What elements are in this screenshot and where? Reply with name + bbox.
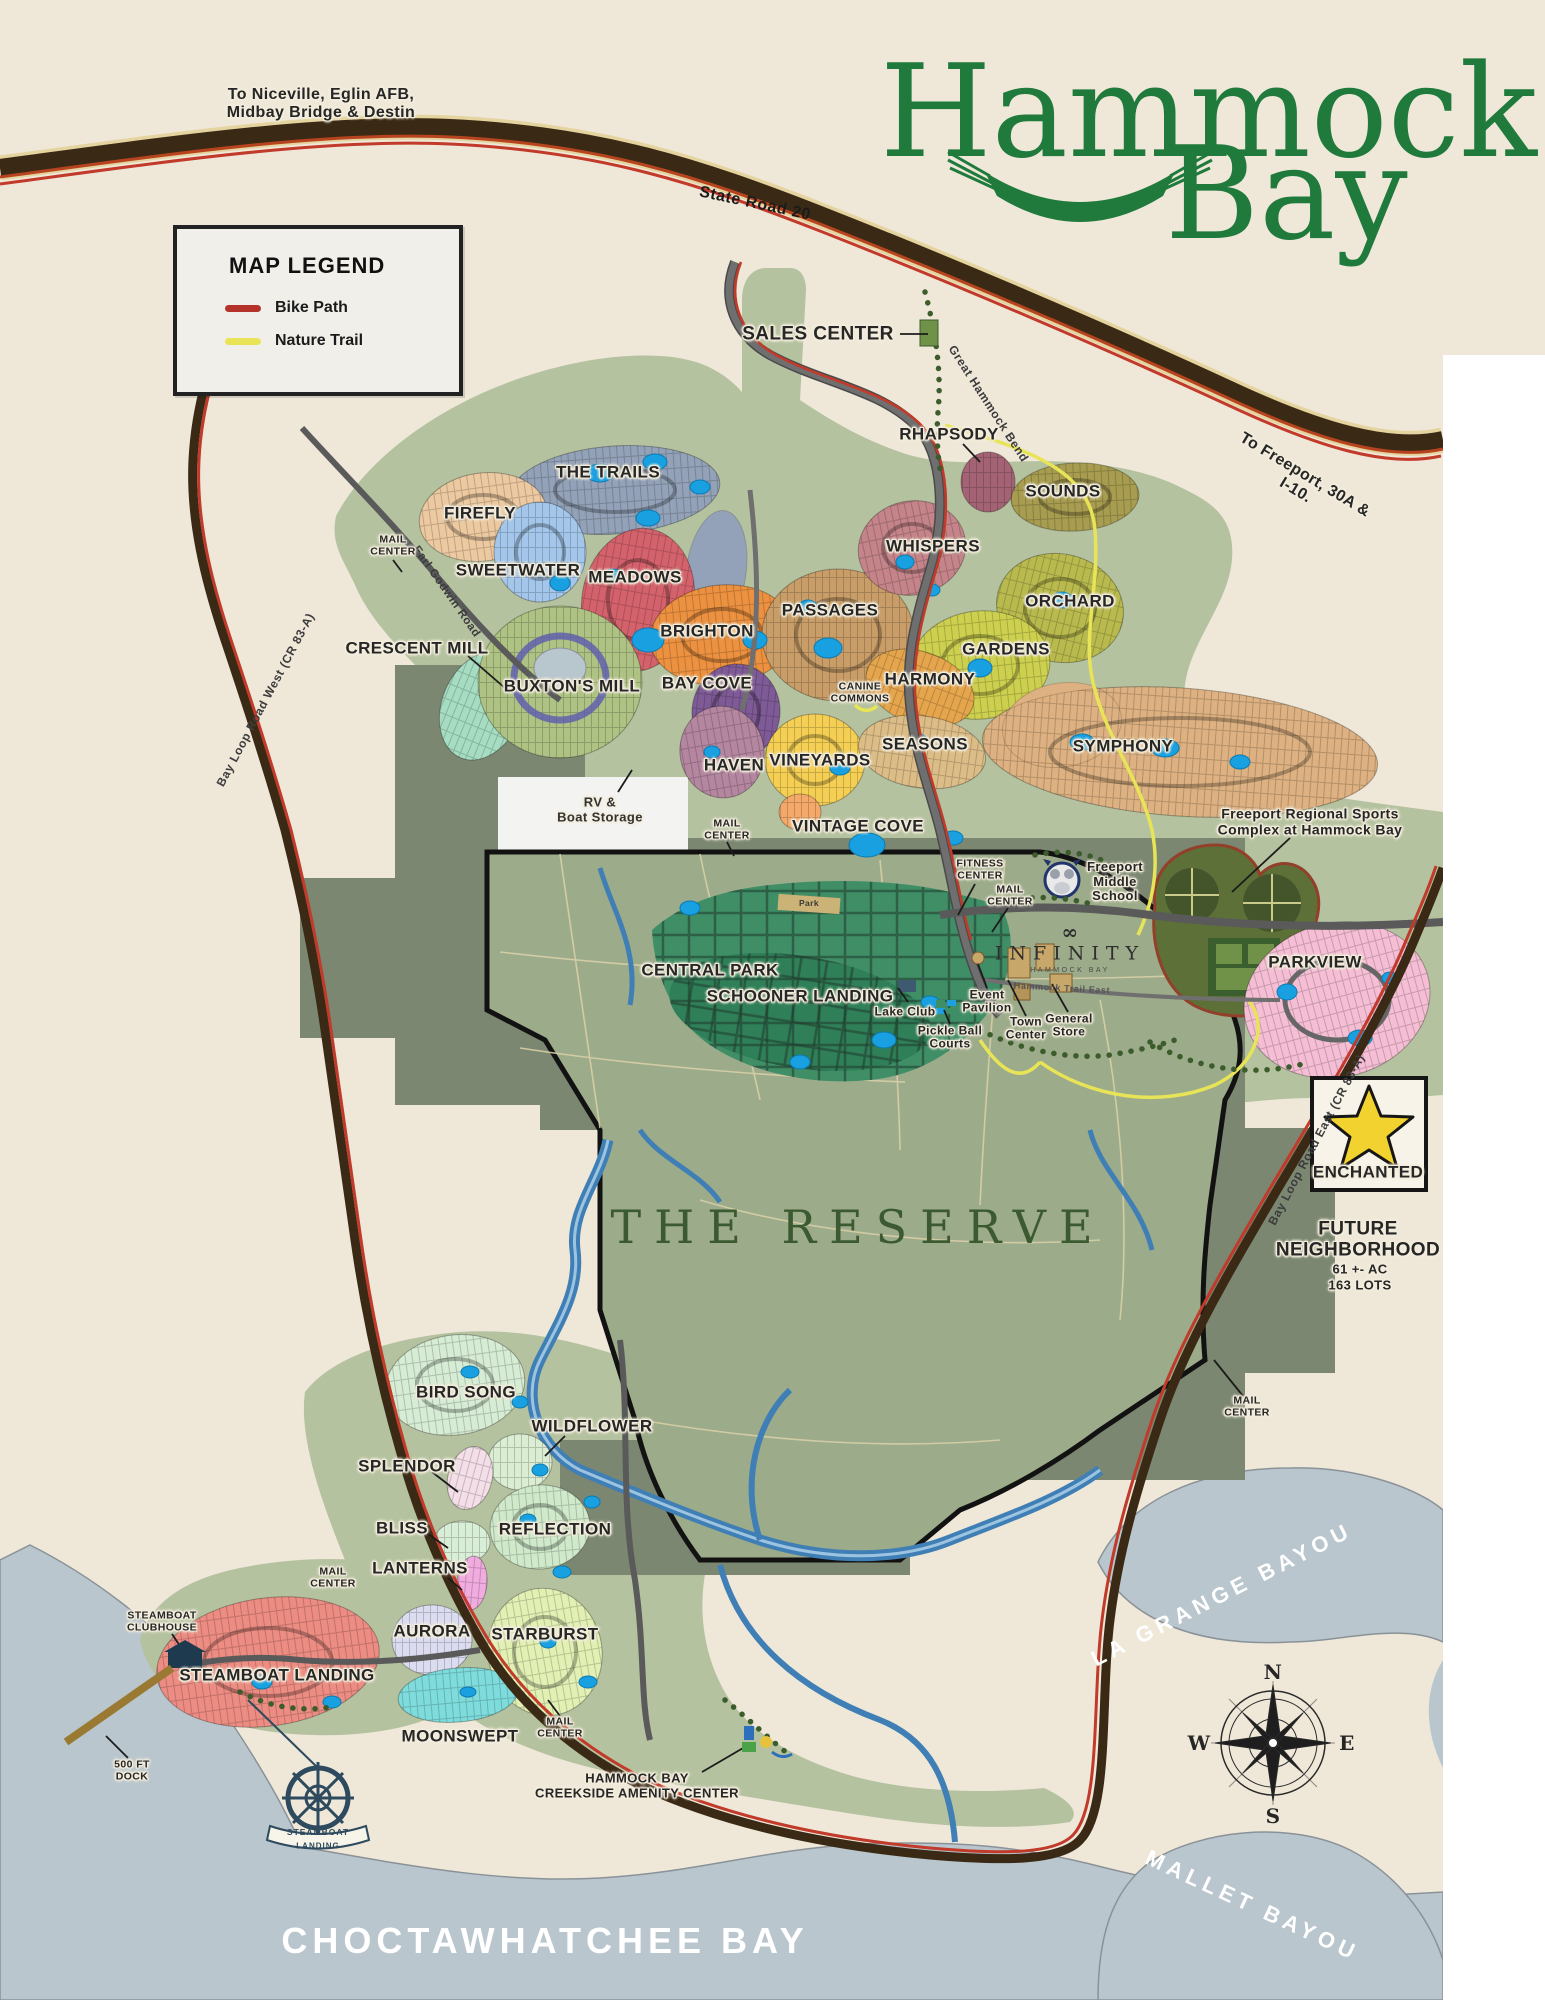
compass-north: N (1264, 1661, 1283, 1683)
bike-path-swatch (225, 305, 261, 312)
neighborhood-label-steamboat-landing: STEAMBOAT LANDING (179, 1665, 374, 1684)
neighborhood-label-sweetwater: SWEETWATER (456, 560, 581, 579)
future-acreage-label: 61 +- AC (1332, 1263, 1387, 1278)
neighborhood-label-wildflower: WILDFLOWER (531, 1416, 652, 1435)
fitness-center-label: FITNESS CENTER (956, 858, 1003, 882)
mail-center-label-moonswept: MAIL CENTER (537, 1716, 583, 1740)
neighborhood-label-aurora: AURORA (393, 1621, 470, 1640)
neighborhood-label-lanterns: LANTERNS (372, 1558, 468, 1577)
neighborhood-label-vintage-cove: VINTAGE COVE (792, 816, 924, 835)
middle-school-crest (1043, 859, 1081, 897)
nature-trail-label: Nature Trail (275, 332, 363, 350)
sales-center-label: SALES CENTER (742, 323, 894, 344)
neighborhood-label-gardens: GARDENS (962, 639, 1050, 658)
neighborhood-label-schooner-landing: SCHOONER LANDING (707, 986, 894, 1005)
steamboat-badge-bottom: LANDING (296, 1843, 339, 1852)
mail-center-label-east: MAIL CENTER (1224, 1395, 1270, 1419)
map-legend-title: MAP LEGEND (229, 253, 385, 279)
steamboat-clubhouse-label: STEAMBOAT CLUBHOUSE (127, 1610, 197, 1634)
neighborhood-label-bay-cove: BAY COVE (662, 673, 752, 692)
neighborhood-label-central-park: CENTRAL PARK (641, 960, 778, 979)
neighborhood-label-the-trails: THE TRAILS (556, 462, 660, 481)
future-neighborhood-label: FUTURE NEIGHBORHOOD (1276, 1219, 1440, 1262)
neighborhood-label-crescent-mill: CRESCENT MILL (345, 638, 488, 657)
neighborhood-label-haven: HAVEN (704, 755, 764, 774)
neighborhood-label-sounds: SOUNDS (1025, 481, 1100, 500)
legend-item-bike-path: Bike Path (225, 299, 348, 317)
rv-boat-storage-label: RV & Boat Storage (557, 795, 643, 824)
infinity-sub-label: HAMMOCK BAY (1030, 967, 1110, 975)
neighborhood-label-vineyards: VINEYARDS (769, 750, 870, 769)
neighborhood-label-bliss: BLISS (376, 1518, 428, 1537)
neighborhood-label-passages: PASSAGES (782, 600, 878, 619)
neighborhood-label-harmony: HARMONY (885, 669, 976, 688)
sports-complex-label: Freeport Regional Sports Complex at Hamm… (1218, 806, 1403, 837)
dock-label: 500 FT DOCK (114, 1759, 150, 1783)
neighborhood-label-symphony: SYMPHONY (1073, 736, 1174, 755)
compass-west: W (1188, 1732, 1211, 1754)
neighborhood-label-orchard: ORCHARD (1025, 591, 1115, 610)
neighborhood-label-bird-song: BIRD SONG (416, 1382, 516, 1401)
compass-south: S (1266, 1805, 1281, 1827)
neighborhood-label-starburst: STARBURST (491, 1624, 598, 1643)
mail-center-label-town: MAIL CENTER (987, 884, 1033, 908)
neighborhood-label-whispers: WHISPERS (886, 536, 980, 555)
water-label-choctawhatchee-bay: CHOCTAWHATCHEE BAY (281, 1921, 808, 1961)
nature-trail-swatch (225, 338, 261, 345)
town-center-label: Town Center (1006, 1016, 1046, 1043)
canine-commons-label: CANINE COMMONS (831, 681, 890, 705)
mail-center-label-west: MAIL CENTER (370, 534, 416, 558)
mail-center-label-vintage: MAIL CENTER (704, 818, 750, 842)
neighborhood-label-brighton: BRIGHTON (660, 621, 754, 640)
lake-club-label: Lake Club (875, 1005, 936, 1018)
neighborhood-label-seasons: SEASONS (882, 734, 968, 753)
infinity-icon: ∞ (1061, 921, 1078, 943)
park-label: Park (799, 899, 819, 909)
neighborhood-label-splendor: SPLENDOR (358, 1456, 456, 1475)
neighborhood-label-buxtons-mill: BUXTON'S MILL (504, 676, 640, 695)
page-margin (1443, 355, 1545, 2000)
enchanted-label: ENCHANTED (1313, 1162, 1423, 1181)
neighborhood-label-moonswept: MOONSWEPT (402, 1726, 519, 1745)
legend-item-nature-trail: Nature Trail (225, 332, 363, 350)
compass-rose (1211, 1681, 1335, 1805)
neighborhood-label-parkview: PARKVIEW (1268, 952, 1362, 971)
general-store-label: General Store (1045, 1013, 1093, 1040)
creekside-label: HAMMOCK BAY CREEKSIDE AMENITY CENTER (535, 1771, 739, 1800)
neighborhood-label-meadows: MEADOWS (588, 567, 681, 586)
hammock-bay-site-map: To Niceville, Eglin AFB, Midbay Bridge &… (0, 0, 1545, 2000)
direction-niceville: To Niceville, Eglin AFB, Midbay Bridge &… (227, 86, 415, 122)
neighborhood-label-firefly: FIREFLY (444, 503, 516, 522)
bike-path-label: Bike Path (275, 299, 348, 317)
event-pavilion-label: Event Pavilion (962, 989, 1011, 1016)
middle-school-label: Freeport Middle School (1087, 860, 1143, 904)
neighborhood-label-reflection: REFLECTION (499, 1519, 612, 1538)
the-reserve-label: THE RESERVE (610, 1202, 1105, 1254)
future-lots-label: 163 LOTS (1328, 1279, 1391, 1294)
sales-center-site (920, 320, 938, 346)
pickle-ball-label: Pickle Ball Courts (918, 1025, 982, 1052)
map-legend: MAP LEGEND Bike Path Nature Trail (173, 225, 463, 396)
compass-east: E (1339, 1732, 1355, 1754)
steamboat-badge-top: STEAMBOAT (287, 1828, 349, 1838)
logo-word-bay: Bay (1165, 120, 1408, 269)
infinity-label: INFINITY (995, 943, 1145, 964)
neighborhood-label-rhapsody: RHAPSODY (899, 424, 999, 443)
mail-center-label-lanterns: MAIL CENTER (310, 1566, 356, 1590)
